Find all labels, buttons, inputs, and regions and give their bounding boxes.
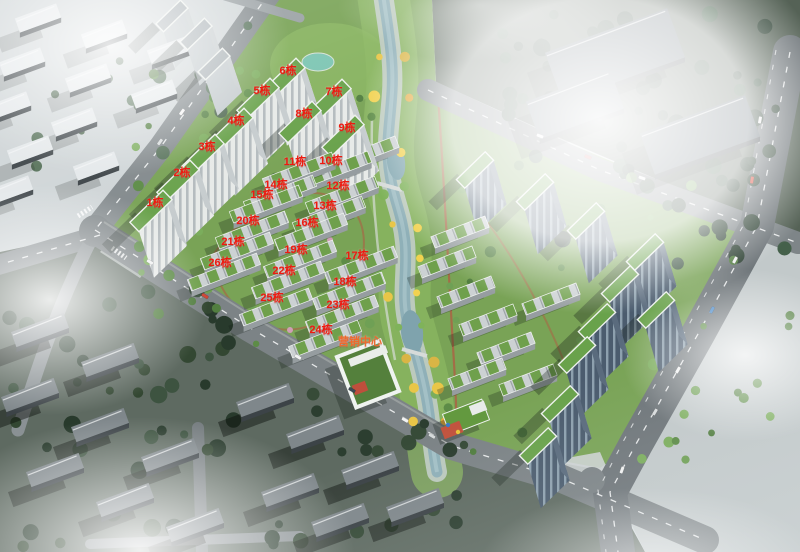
terrain-graphic [0,0,800,552]
aerial-masterplan-rendering: 1栋2栋3栋4栋5栋6栋7栋8栋9栋10栋11栋12栋13栋14栋15栋16栋1… [0,0,800,552]
